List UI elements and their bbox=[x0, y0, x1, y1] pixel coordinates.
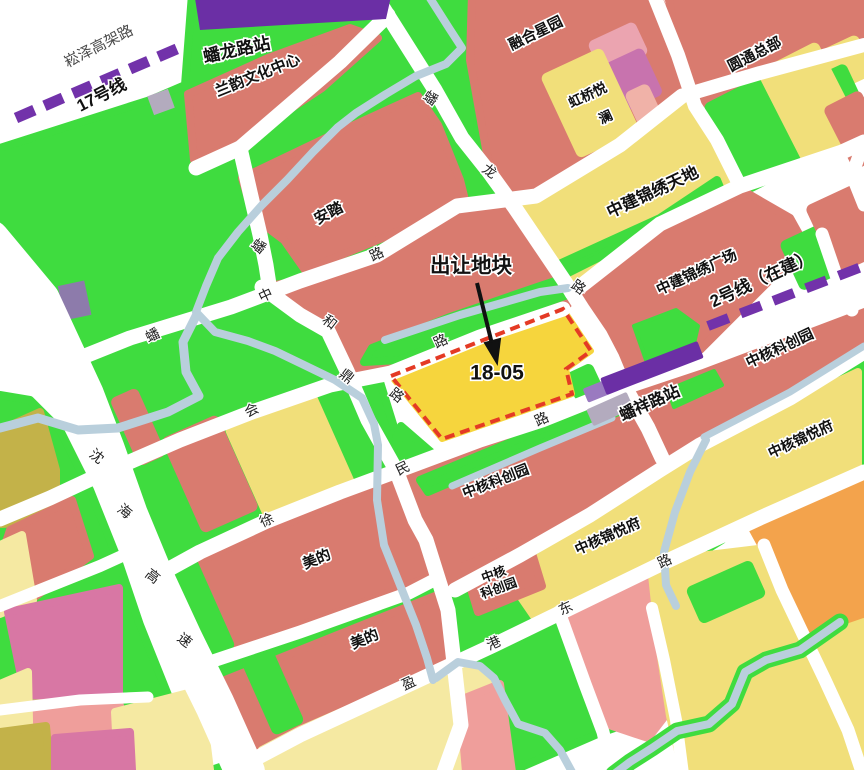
svg-text:出让地块: 出让地块 bbox=[430, 253, 512, 277]
svg-text:18-05: 18-05 bbox=[470, 362, 524, 385]
